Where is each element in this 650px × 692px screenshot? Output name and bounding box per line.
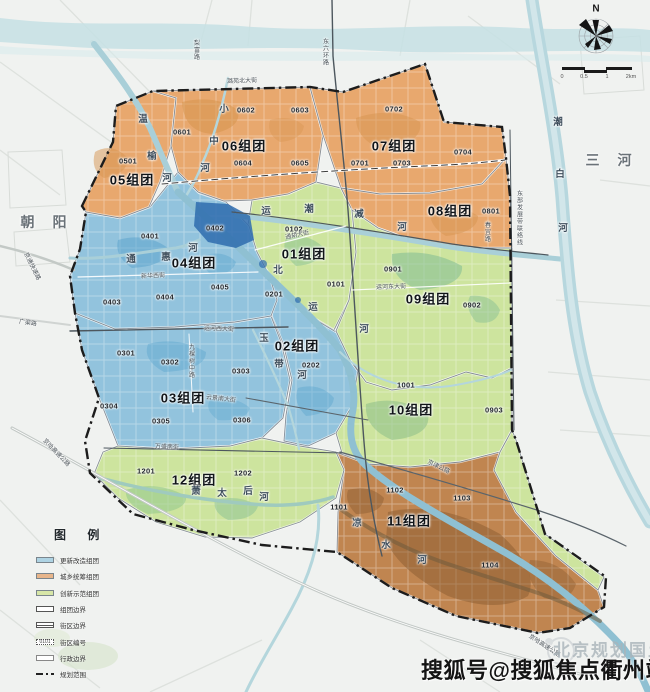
zone-label: 06组团 <box>222 136 266 155</box>
river-label-char: 河 <box>397 219 407 233</box>
legend-swatch-dashdot-icon <box>36 673 54 675</box>
zone-label: 01组团 <box>282 244 326 263</box>
block-code: 0405 <box>211 283 229 292</box>
river-label-char: 河 <box>200 160 210 174</box>
legend-item-label: 规划范围 <box>60 669 86 679</box>
block-code: 1101 <box>330 503 347 512</box>
block-code: 0601 <box>173 128 191 137</box>
legend-item: 行政边界 <box>36 650 108 666</box>
block-code: 1201 <box>137 467 155 476</box>
block-code: 0903 <box>485 406 503 415</box>
zone-label: 11组团 <box>387 511 431 530</box>
legend: 图 例 更新改造组团城乡统筹组团创新示范组团组团边界街区边界0101街区编号行政… <box>36 526 108 682</box>
legend-item: 城乡统筹组团 <box>36 568 108 584</box>
river-label-char: 河 <box>259 489 269 503</box>
zone-label: 02组团 <box>275 336 319 355</box>
river-label-char: 后 <box>243 483 253 497</box>
block-code: 0902 <box>463 301 481 310</box>
legend-item: 更新改造组团 <box>36 552 108 568</box>
planning-map: 01组团0101010202组团0201020203组团030103020303… <box>0 0 650 692</box>
river-label-char: 带 <box>274 356 284 370</box>
zone-label: 08组团 <box>428 201 472 220</box>
zone-label: 04组团 <box>172 253 216 272</box>
block-code: 0702 <box>385 105 403 114</box>
road-label: 春宜路 <box>483 222 492 243</box>
block-code: 0303 <box>232 367 250 376</box>
river-label-char: 河 <box>297 367 307 381</box>
legend-items: 更新改造组团城乡统筹组团创新示范组团组团边界街区边界0101街区编号行政边界规划… <box>36 552 108 682</box>
river-label-char: 萧 <box>191 483 201 497</box>
legend-item-label: 更新改造组团 <box>60 555 99 565</box>
legend-item-label: 创新示范组团 <box>60 588 99 598</box>
legend-item-label: 组团边界 <box>60 604 86 614</box>
road-label: 新华西街 <box>141 270 165 280</box>
road-label: 东部发展带联络线 <box>515 190 524 246</box>
river-label-char: 运 <box>261 203 271 217</box>
river-label-char: 惠 <box>161 249 171 263</box>
road-label: 东六环路 <box>321 38 330 66</box>
river-label-char: 河 <box>162 170 172 184</box>
place-label: 三 河 <box>586 150 639 170</box>
block-code: 0701 <box>351 159 369 168</box>
block-code: 1102 <box>386 486 403 495</box>
block-code: 0602 <box>237 106 255 115</box>
river-label-char: 温 <box>138 111 148 125</box>
legend-item-label: 街区编号 <box>60 637 86 647</box>
road-label: 运河东大街 <box>376 281 406 291</box>
block-code: 1104 <box>481 561 498 570</box>
block-code: 0404 <box>156 293 174 302</box>
zone-label: 07组团 <box>372 136 416 155</box>
scale-tick: 1 <box>605 74 608 80</box>
legend-item-label: 城乡统筹组团 <box>60 571 99 581</box>
legend-swatch-box3-icon <box>36 655 54 661</box>
road-label: 万盛南街 <box>155 441 179 451</box>
block-code: 0301 <box>117 349 135 358</box>
legend-item-label: 行政边界 <box>60 653 86 663</box>
block-code: 0304 <box>100 402 118 411</box>
road-label: 运河西大街 <box>204 323 234 333</box>
river-label-char: 河 <box>359 321 369 335</box>
block-code: 0605 <box>291 159 309 168</box>
block-code: 0501 <box>119 157 137 166</box>
sohu-watermark: 搜狐号@搜狐焦点衢州站 <box>421 653 650 685</box>
scale-tick: 0 <box>560 74 563 80</box>
road-label: 京哈高速公路 <box>41 436 72 468</box>
river-label-char: 白 <box>555 166 565 180</box>
river-label-char: 水 <box>381 537 391 551</box>
road-label: 潞苑北大街 <box>227 75 257 85</box>
river-label-char: 河 <box>188 240 198 254</box>
road-label: 广渠路 <box>18 316 37 327</box>
block-code: 0101 <box>327 280 345 289</box>
legend-item: 规划范围 <box>36 666 108 682</box>
block-code: 1202 <box>234 469 252 478</box>
legend-item: 0101街区编号 <box>36 633 108 649</box>
road-label: 京通快速路 <box>22 251 43 282</box>
scale-tick: 0.5 <box>580 74 588 80</box>
river-label-char: 小 <box>219 101 229 115</box>
river-label-char: 太 <box>217 485 227 499</box>
road-label: 九棵树中路 <box>187 344 196 379</box>
river-label-char: 通 <box>126 251 136 265</box>
zone-label: 05组团 <box>110 170 154 189</box>
legend-swatch-box-icon <box>36 606 54 612</box>
river-label-char: 河 <box>558 220 568 234</box>
block-code: 1001 <box>397 381 415 390</box>
river-label-char: 玉 <box>259 330 269 344</box>
place-label: 朝 阳 <box>21 212 74 232</box>
block-code: 0302 <box>161 358 179 367</box>
block-code: 0703 <box>393 159 411 168</box>
block-code: 0901 <box>384 265 402 274</box>
legend-title: 图 例 <box>54 526 108 543</box>
block-code: 0403 <box>103 298 121 307</box>
zone-label: 03组团 <box>161 388 205 407</box>
legend-item: 街区边界 <box>36 617 108 633</box>
river-label-char: 凉 <box>352 515 362 529</box>
road-label: 京津公路 <box>426 457 452 476</box>
block-code: 0401 <box>141 232 159 241</box>
legend-swatch-fill-icon <box>36 573 54 579</box>
legend-item-label: 街区边界 <box>60 620 86 630</box>
legend-item: 创新示范组团 <box>36 585 108 601</box>
river-label-char: 潮 <box>553 114 563 128</box>
zone-label: 10组团 <box>389 400 433 419</box>
block-code: 0704 <box>454 148 472 157</box>
legend-swatch-fill-icon <box>36 557 54 563</box>
block-code: 0201 <box>265 290 283 299</box>
block-code: 0305 <box>152 417 170 426</box>
river-label-char: 榆 <box>147 148 157 162</box>
river-label-char: 北 <box>273 262 283 276</box>
river-label-char: 中 <box>209 133 219 147</box>
legend-swatch-fill-icon <box>36 590 54 596</box>
scale-tick: 2km <box>626 74 636 80</box>
block-code: 0801 <box>482 207 500 216</box>
block-code: 0402 <box>206 224 224 233</box>
compass-north-label: N <box>592 4 599 15</box>
block-code: 0603 <box>291 106 309 115</box>
river-label-char: 河 <box>417 552 427 566</box>
legend-item: 组团边界 <box>36 601 108 617</box>
road-label: 云景南大街 <box>206 392 237 404</box>
block-code: 0306 <box>233 416 251 425</box>
road-label: 梨富路 <box>192 40 201 61</box>
river-label-char: 运 <box>308 299 318 313</box>
river-label-char: 潮 <box>304 201 314 215</box>
river-label-char: 减 <box>354 206 364 220</box>
block-code: 0604 <box>234 159 252 168</box>
legend-swatch-box2-icon <box>36 622 54 628</box>
legend-swatch-code-icon: 0101 <box>36 639 54 645</box>
zone-label: 09组团 <box>406 289 450 308</box>
block-code: 1103 <box>453 494 470 503</box>
